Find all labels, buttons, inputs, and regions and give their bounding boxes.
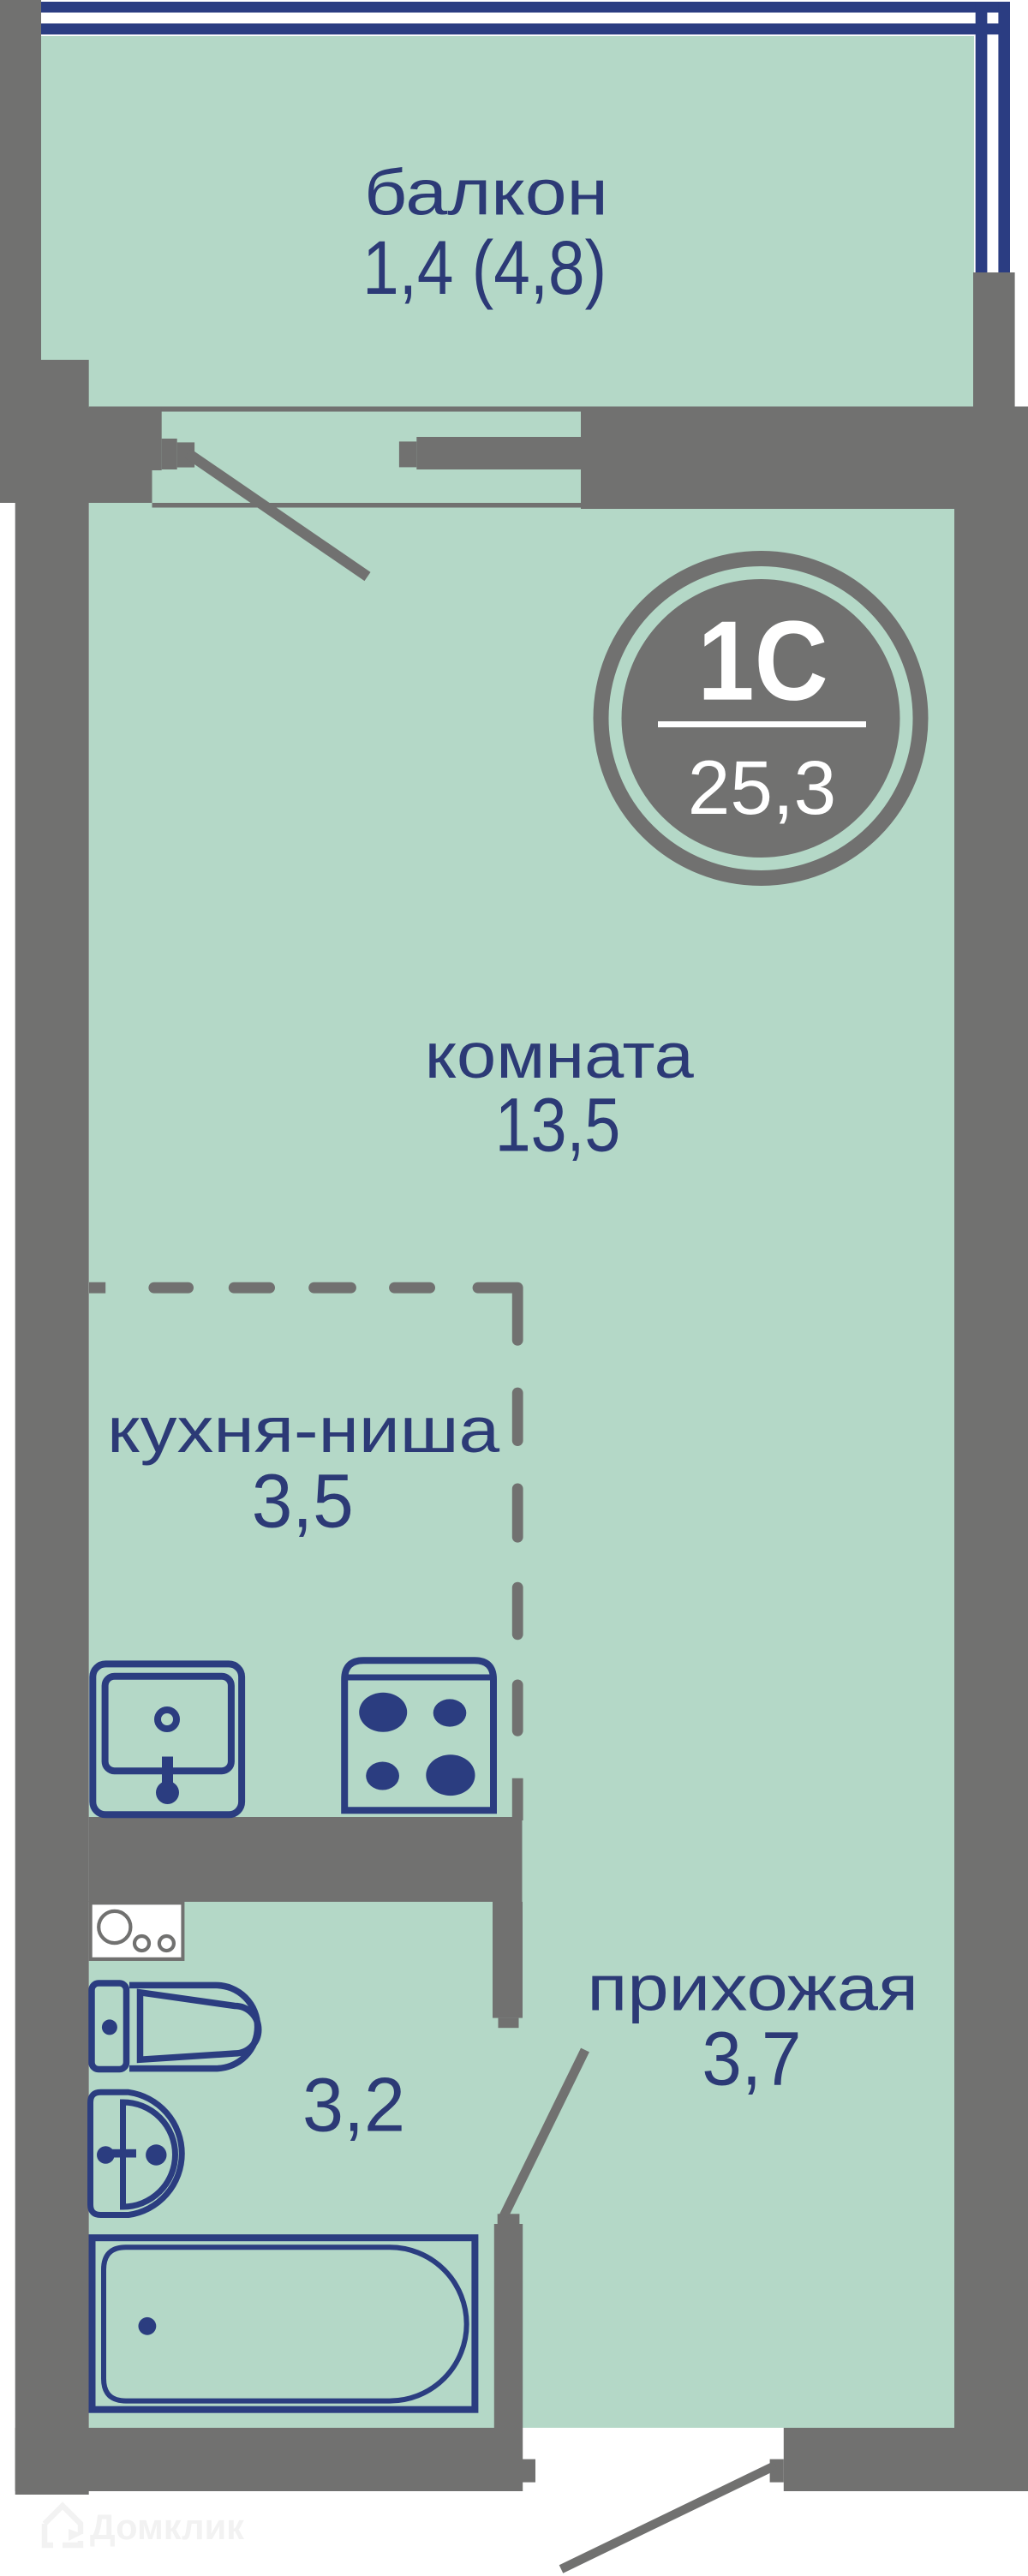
svg-text:1С: 1С bbox=[697, 598, 828, 724]
svg-text:3,5: 3,5 bbox=[252, 1458, 354, 1544]
svg-text:25,3: 25,3 bbox=[688, 744, 836, 830]
svg-text:прихожая: прихожая bbox=[587, 1952, 918, 2024]
svg-text:13,5: 13,5 bbox=[495, 1082, 621, 1168]
svg-text:кухня-ниша: кухня-ниша bbox=[107, 1394, 499, 1466]
svg-text:балкон: балкон bbox=[364, 157, 608, 229]
svg-text:1,4 (4,8): 1,4 (4,8) bbox=[362, 224, 607, 310]
svg-text:комната: комната bbox=[425, 1019, 694, 1091]
svg-text:Домклик: Домклик bbox=[90, 2507, 245, 2547]
svg-text:3,2: 3,2 bbox=[302, 2062, 405, 2148]
svg-text:3,7: 3,7 bbox=[702, 2016, 801, 2101]
